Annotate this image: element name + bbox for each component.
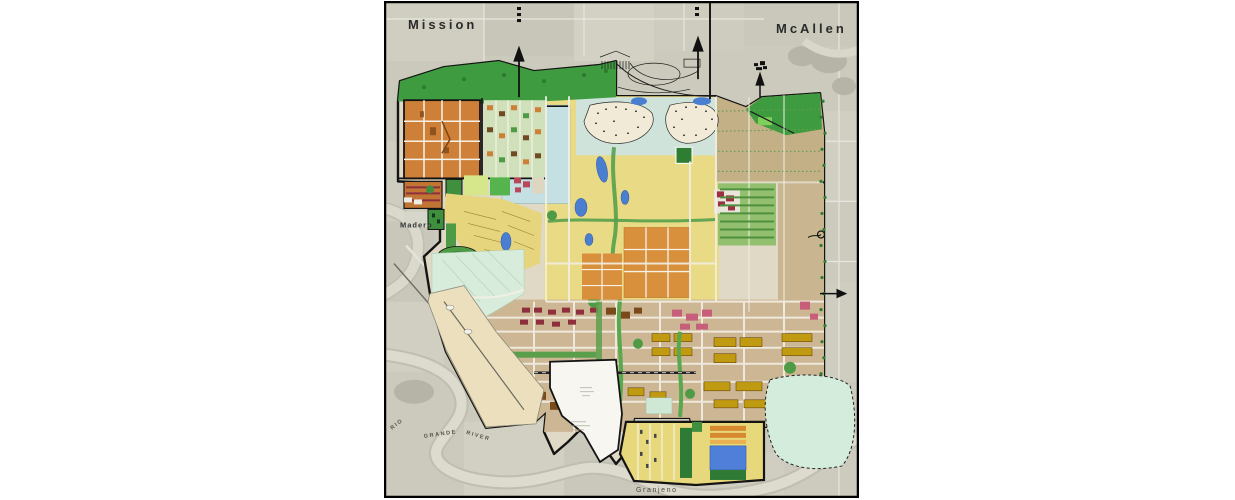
civic-cluster-midright — [714, 189, 740, 213]
label-granjeno: Granjeno — [636, 487, 678, 494]
label-madero: Madero — [400, 220, 433, 229]
label-mission: Mission — [408, 17, 477, 32]
district-mint-se — [765, 375, 854, 469]
district-fields-e — [778, 183, 824, 313]
map-canvas: Mission McAllen Madero Granjeno RIO GRAN… — [384, 1, 859, 498]
label-mcallen: McAllen — [776, 21, 847, 36]
master-plan-map: Mission McAllen Madero Granjeno RIO GRAN… — [384, 1, 859, 498]
club-site — [676, 147, 692, 163]
page: Mission McAllen Madero Granjeno RIO GRAN… — [0, 0, 1235, 500]
granjeno-parcel — [620, 422, 764, 485]
district-orange-nw — [404, 100, 480, 178]
